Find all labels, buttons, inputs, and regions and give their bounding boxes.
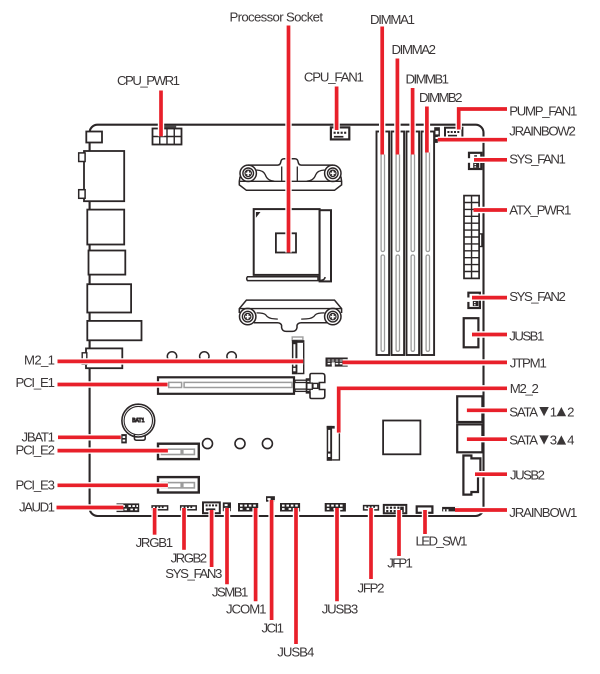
svg-text:JFP2: JFP2 bbox=[358, 580, 385, 595]
svg-text:JRAINBOW2: JRAINBOW2 bbox=[509, 124, 576, 139]
svg-text:JRAINBOW1: JRAINBOW1 bbox=[509, 505, 577, 520]
svg-text:PCI_E1: PCI_E1 bbox=[16, 375, 56, 390]
svg-text:JUSB2: JUSB2 bbox=[510, 467, 545, 482]
svg-text:JFP1: JFP1 bbox=[387, 555, 413, 570]
svg-text:LED_SW1: LED_SW1 bbox=[416, 534, 468, 549]
svg-text:BAT1: BAT1 bbox=[132, 418, 144, 424]
svg-text:JCOM1: JCOM1 bbox=[226, 602, 267, 617]
svg-text:JRGB2: JRGB2 bbox=[171, 550, 208, 565]
svg-text:JRGB1: JRGB1 bbox=[136, 535, 174, 550]
svg-text:CPU_FAN1: CPU_FAN1 bbox=[304, 69, 364, 84]
svg-text:PUMP_FAN1: PUMP_FAN1 bbox=[509, 103, 577, 118]
svg-text:DIMMA1: DIMMA1 bbox=[370, 12, 415, 27]
svg-text:JCI1: JCI1 bbox=[262, 620, 285, 635]
svg-text:4: 4 bbox=[567, 433, 574, 448]
svg-text:DIMMA2: DIMMA2 bbox=[392, 42, 437, 57]
svg-text:CPU_PWR1: CPU_PWR1 bbox=[117, 73, 180, 88]
svg-text:JAUD1: JAUD1 bbox=[19, 499, 55, 514]
svg-text:2: 2 bbox=[567, 404, 574, 419]
svg-text:PCI_E3: PCI_E3 bbox=[16, 477, 56, 492]
svg-text:M2_1: M2_1 bbox=[24, 353, 55, 368]
svg-text:DIMMB1: DIMMB1 bbox=[406, 72, 450, 87]
svg-text:JUSB1: JUSB1 bbox=[509, 328, 544, 343]
svg-text:ATX_PWR1: ATX_PWR1 bbox=[509, 203, 571, 218]
svg-text:1: 1 bbox=[550, 404, 557, 419]
svg-text:SATA: SATA bbox=[509, 433, 538, 448]
svg-text:Processor Socket: Processor Socket bbox=[230, 9, 324, 24]
svg-text:PCI_E2: PCI_E2 bbox=[16, 443, 56, 458]
svg-text:SYS_FAN2: SYS_FAN2 bbox=[509, 289, 566, 304]
svg-text:JUSB3: JUSB3 bbox=[322, 602, 359, 617]
svg-text:3: 3 bbox=[550, 433, 557, 448]
svg-text:SYS_FAN1: SYS_FAN1 bbox=[509, 152, 566, 167]
svg-text:SATA: SATA bbox=[509, 404, 538, 419]
svg-text:DIMMB2: DIMMB2 bbox=[419, 90, 463, 105]
svg-text:JTPM1: JTPM1 bbox=[510, 356, 547, 371]
svg-text:M2_2: M2_2 bbox=[510, 381, 539, 396]
svg-text:JSMB1: JSMB1 bbox=[212, 584, 249, 599]
svg-text:SYS_FAN3: SYS_FAN3 bbox=[165, 566, 222, 581]
svg-text:JUSB4: JUSB4 bbox=[277, 644, 314, 659]
